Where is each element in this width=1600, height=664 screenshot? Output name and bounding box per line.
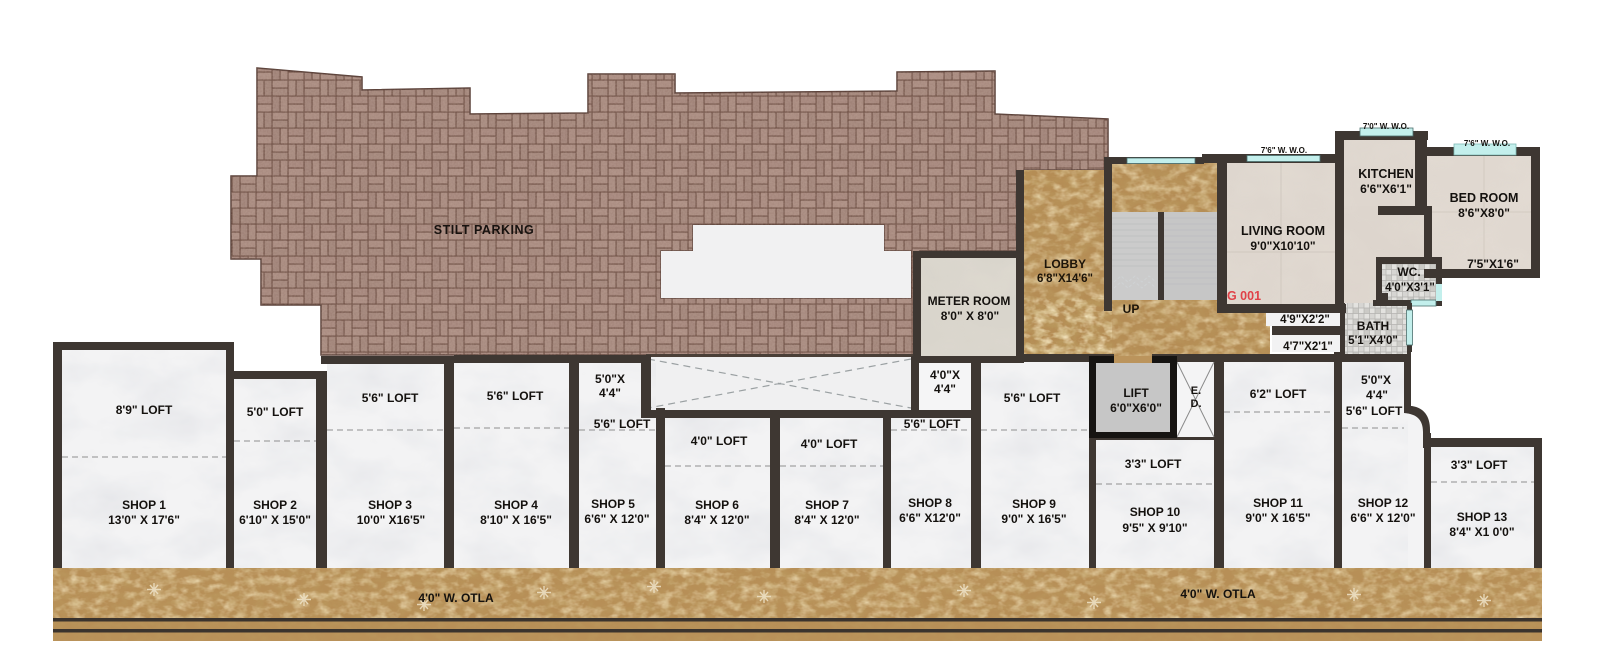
svg-text:5'6" LOFT: 5'6" LOFT: [362, 391, 419, 405]
svg-text:8'4" X 12'0": 8'4" X 12'0": [794, 513, 859, 527]
svg-text:6'6"X6'1": 6'6"X6'1": [1360, 182, 1412, 196]
svg-text:3'3" LOFT: 3'3" LOFT: [1451, 458, 1508, 472]
svg-text:8'6"X8'0": 8'6"X8'0": [1458, 206, 1510, 220]
svg-text:4'0" LOFT: 4'0" LOFT: [691, 434, 748, 448]
svg-text:SHOP 7: SHOP 7: [805, 498, 849, 512]
svg-text:4'0" LOFT: 4'0" LOFT: [801, 437, 858, 451]
svg-text:8'0" X 8'0": 8'0" X 8'0": [941, 309, 999, 323]
svg-text:SHOP 11: SHOP 11: [1253, 496, 1303, 510]
svg-text:7'5"X1'6": 7'5"X1'6": [1467, 257, 1519, 271]
svg-text:5'6" LOFT: 5'6" LOFT: [904, 417, 961, 431]
svg-text:5'1"X4'0": 5'1"X4'0": [1348, 335, 1398, 347]
svg-text:KITCHEN: KITCHEN: [1358, 167, 1414, 181]
svg-text:4'7"X2'1": 4'7"X2'1": [1283, 341, 1333, 353]
svg-text:6'6" X 12'0": 6'6" X 12'0": [1350, 511, 1415, 525]
svg-text:5'6" LOFT: 5'6" LOFT: [1004, 391, 1061, 405]
svg-text:7'6" W. W.O.: 7'6" W. W.O.: [1464, 139, 1510, 148]
svg-text:4'0" W. OTLA: 4'0" W. OTLA: [1180, 587, 1256, 601]
svg-text:8'4" X 12'0": 8'4" X 12'0": [684, 513, 749, 527]
svg-text:LIVING ROOM: LIVING ROOM: [1241, 224, 1325, 238]
svg-text:4'4": 4'4": [599, 386, 621, 400]
svg-text:9'0"X10'10": 9'0"X10'10": [1250, 239, 1315, 253]
svg-text:6'2" LOFT: 6'2" LOFT: [1250, 387, 1307, 401]
svg-text:7'0" W. W.O.: 7'0" W. W.O.: [1363, 122, 1409, 131]
svg-text:3'3" LOFT: 3'3" LOFT: [1125, 457, 1182, 471]
svg-text:BATH: BATH: [1357, 319, 1389, 333]
svg-text:SHOP 6: SHOP 6: [695, 498, 739, 512]
svg-text:5'6" LOFT: 5'6" LOFT: [594, 417, 651, 431]
svg-text:4'0" W. OTLA: 4'0" W. OTLA: [418, 591, 494, 605]
svg-text:UP: UP: [1123, 302, 1140, 316]
svg-text:4'0"X3'1": 4'0"X3'1": [1385, 282, 1435, 294]
svg-text:D.: D.: [1191, 398, 1202, 410]
svg-text:4'4": 4'4": [934, 382, 956, 396]
svg-text:8'9" LOFT: 8'9" LOFT: [116, 403, 173, 417]
svg-text:9'0" X 16'5": 9'0" X 16'5": [1245, 511, 1310, 525]
svg-text:6'0"X6'0": 6'0"X6'0": [1110, 401, 1162, 415]
svg-text:7'6" W. W.O.: 7'6" W. W.O.: [1261, 146, 1307, 155]
svg-text:SHOP 5: SHOP 5: [591, 497, 635, 511]
svg-text:4'4": 4'4": [1366, 388, 1388, 402]
svg-text:LOBBY: LOBBY: [1044, 257, 1086, 271]
svg-text:STILT PARKING: STILT PARKING: [434, 223, 534, 237]
svg-text:5'6" LOFT: 5'6" LOFT: [1346, 404, 1403, 418]
svg-text:LIFT: LIFT: [1123, 386, 1149, 400]
svg-text:5'0"X: 5'0"X: [1361, 373, 1391, 387]
svg-text:6'8"X14'6": 6'8"X14'6": [1037, 273, 1093, 285]
svg-text:4'9"X2'2": 4'9"X2'2": [1280, 314, 1330, 326]
svg-text:METER ROOM: METER ROOM: [928, 294, 1011, 308]
svg-text:10'0" X16'5": 10'0" X16'5": [357, 513, 425, 527]
svg-text:9'5" X 9'10": 9'5" X 9'10": [1122, 521, 1187, 535]
svg-text:SHOP 3: SHOP 3: [368, 498, 412, 512]
svg-text:WC.: WC.: [1397, 265, 1420, 279]
svg-text:SHOP 10: SHOP 10: [1130, 505, 1181, 519]
svg-text:13'0" X 17'6": 13'0" X 17'6": [108, 513, 180, 527]
svg-text:6'10" X 15'0": 6'10" X 15'0": [239, 513, 311, 527]
svg-text:5'0"X: 5'0"X: [595, 372, 625, 386]
svg-text:BED ROOM: BED ROOM: [1450, 191, 1519, 205]
svg-text:6'6" X12'0": 6'6" X12'0": [899, 511, 961, 525]
svg-text:SHOP 13: SHOP 13: [1457, 510, 1508, 524]
svg-text:8'10" X 16'5": 8'10" X 16'5": [480, 513, 552, 527]
svg-text:SHOP 9: SHOP 9: [1012, 497, 1056, 511]
svg-text:9'0" X 16'5": 9'0" X 16'5": [1001, 512, 1066, 526]
svg-text:SHOP 1: SHOP 1: [122, 498, 166, 512]
svg-text:6'6" X 12'0": 6'6" X 12'0": [584, 512, 649, 526]
svg-text:E.: E.: [1191, 385, 1201, 397]
svg-text:SHOP 2: SHOP 2: [253, 498, 297, 512]
svg-text:5'6" LOFT: 5'6" LOFT: [487, 389, 544, 403]
svg-text:SHOP 12: SHOP 12: [1358, 496, 1409, 510]
svg-text:G 001: G 001: [1227, 289, 1261, 303]
svg-text:8'4" X1 0'0": 8'4" X1 0'0": [1449, 525, 1514, 539]
svg-text:SHOP 4: SHOP 4: [494, 498, 538, 512]
svg-text:SHOP 8: SHOP 8: [908, 496, 952, 510]
svg-text:4'0"X: 4'0"X: [930, 368, 960, 382]
svg-text:5'0" LOFT: 5'0" LOFT: [247, 405, 304, 419]
